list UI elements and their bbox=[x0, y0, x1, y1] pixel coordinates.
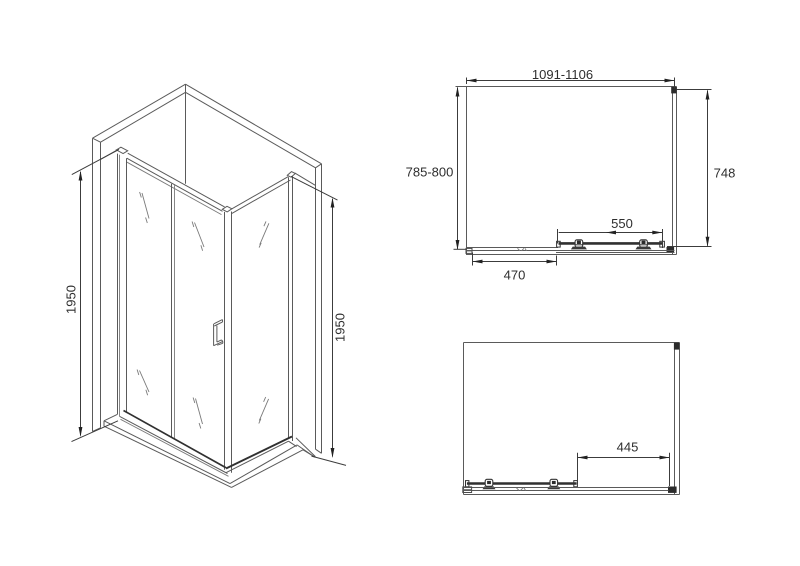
svg-text:1091-1106: 1091-1106 bbox=[532, 67, 593, 82]
svg-text:785-800: 785-800 bbox=[406, 165, 454, 180]
svg-text:470: 470 bbox=[504, 268, 526, 283]
svg-text:1950: 1950 bbox=[64, 285, 79, 314]
svg-text:550: 550 bbox=[611, 216, 633, 231]
svg-text:1950: 1950 bbox=[333, 313, 348, 342]
svg-text:445: 445 bbox=[617, 440, 639, 455]
svg-text:748: 748 bbox=[714, 166, 736, 181]
